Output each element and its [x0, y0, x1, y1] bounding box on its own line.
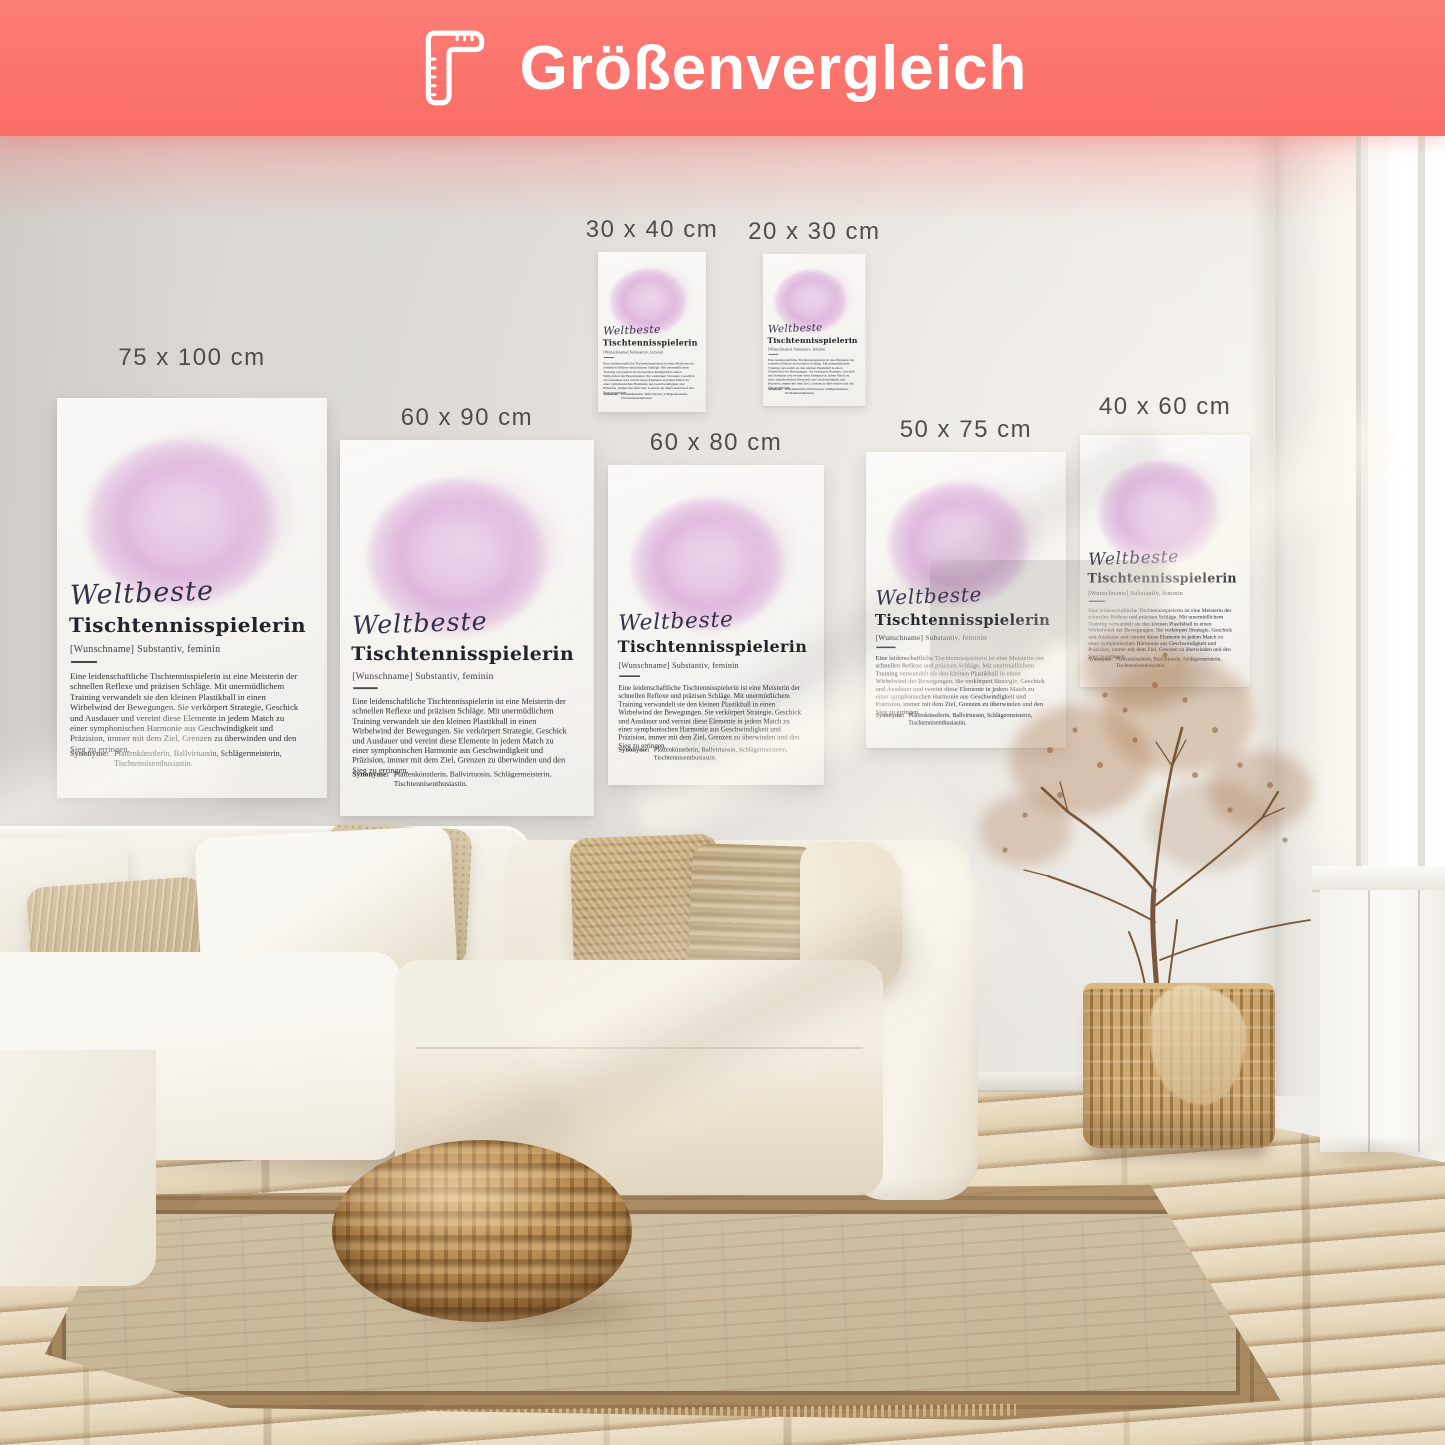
ruler-icon	[418, 25, 492, 111]
sofa-chaise	[0, 1050, 156, 1286]
size-comparison-mockup: 75 x 100 cm Weltbeste Tischtennisspieler…	[0, 0, 1445, 1445]
sofa	[0, 0, 1445, 1445]
rattan-pouf	[332, 1140, 632, 1322]
size-comparison-banner: Größenvergleich	[0, 0, 1445, 136]
banner-title: Größenvergleich	[520, 33, 1028, 104]
